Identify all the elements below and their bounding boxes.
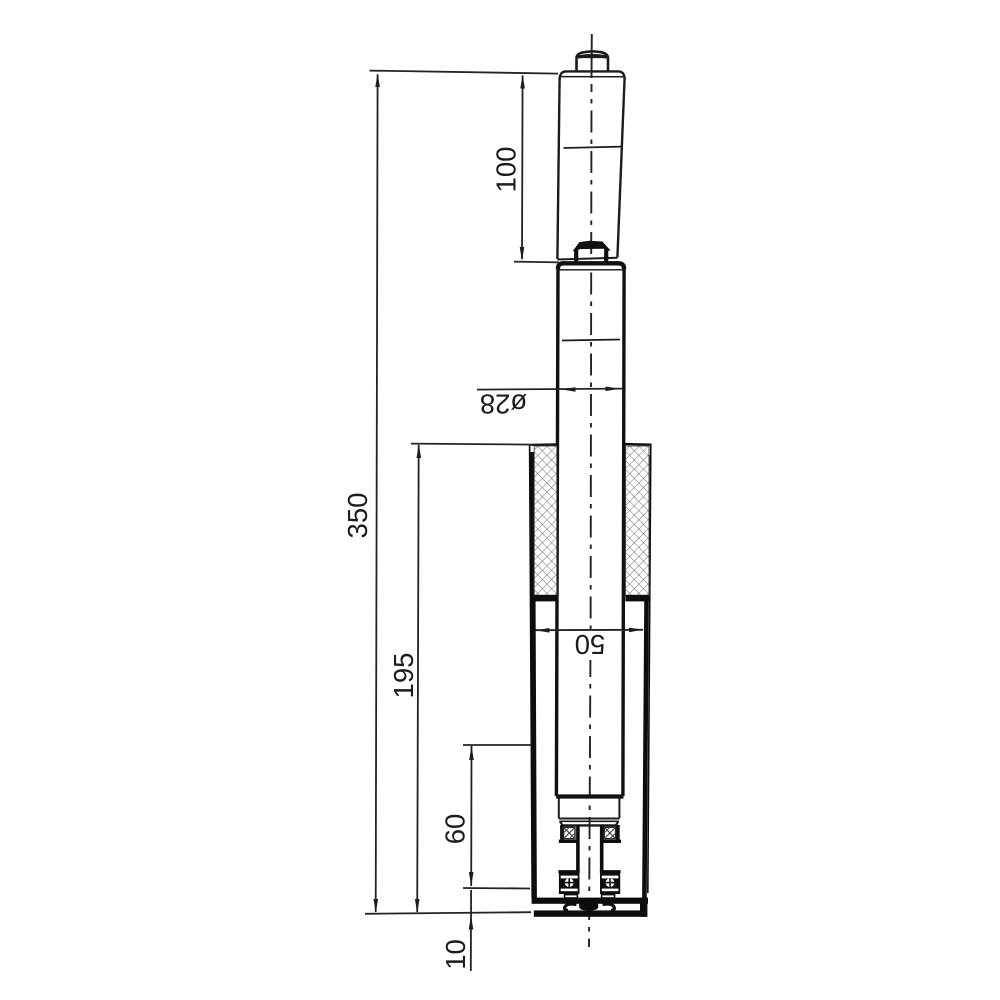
svg-text:100: 100 xyxy=(491,147,522,193)
svg-text:10: 10 xyxy=(440,939,471,970)
svg-text:195: 195 xyxy=(388,653,419,699)
svg-text:60: 60 xyxy=(440,814,471,845)
svg-text:ø28: ø28 xyxy=(480,389,527,420)
svg-text:350: 350 xyxy=(342,493,373,539)
svg-text:50: 50 xyxy=(575,629,606,660)
